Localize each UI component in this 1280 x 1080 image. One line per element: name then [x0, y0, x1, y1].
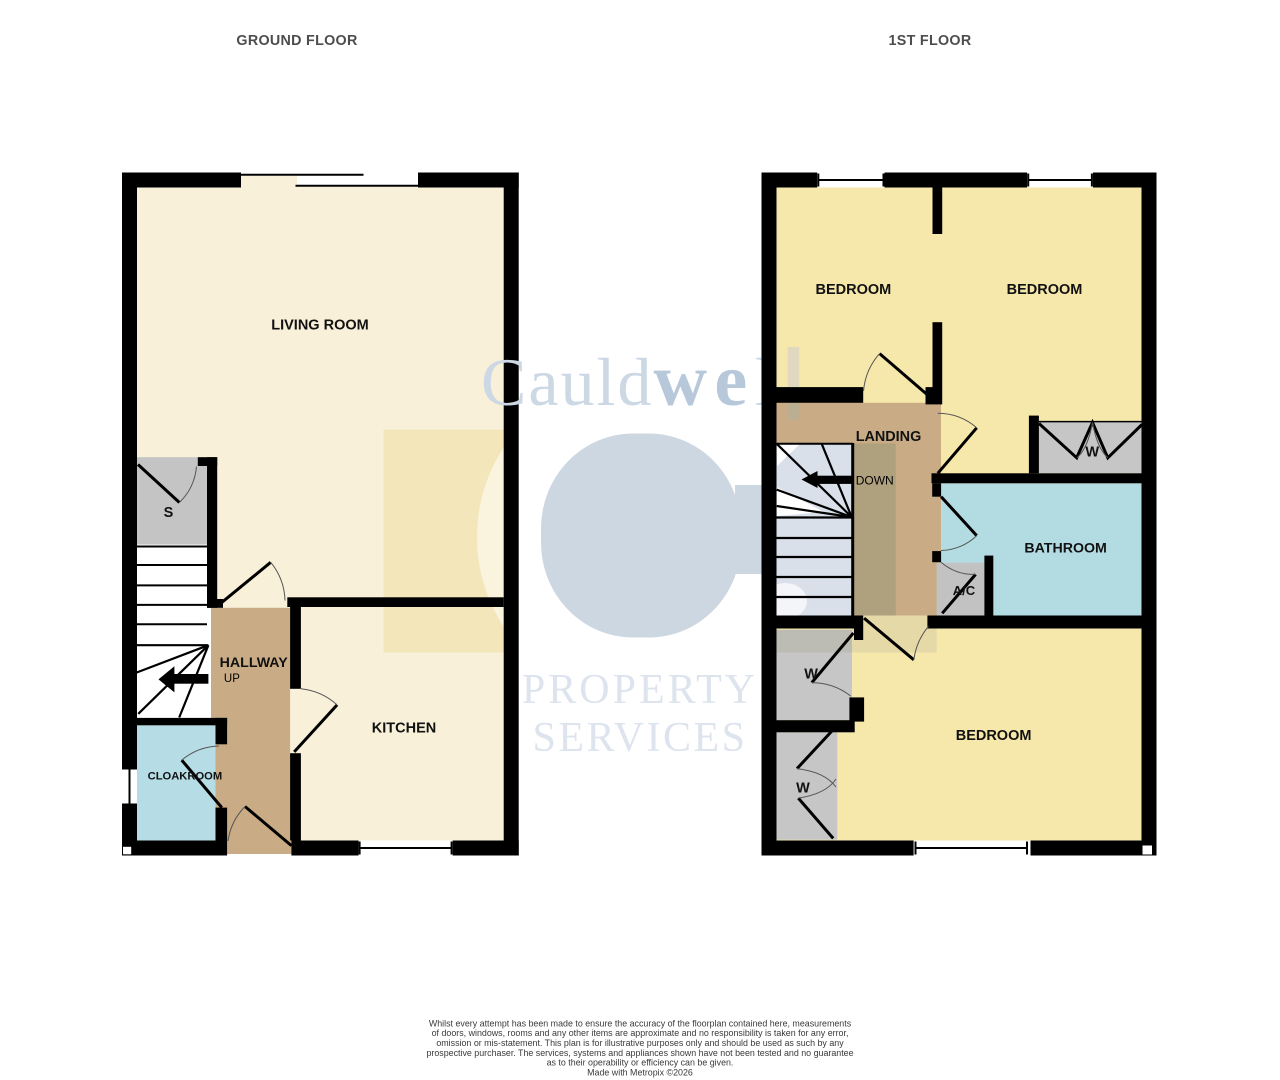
svg-text:DOWN: DOWN	[856, 474, 894, 488]
svg-text:BEDROOM: BEDROOM	[1007, 282, 1083, 298]
svg-text:A/C: A/C	[953, 583, 976, 598]
svg-text:GROUND FLOOR: GROUND FLOOR	[236, 33, 358, 49]
svg-text:UP: UP	[224, 673, 240, 685]
svg-text:prospective purchaser. The ser: prospective purchaser. The services, sys…	[426, 1048, 853, 1058]
svg-text:as to their operability or eff: as to their operability or efficiency ca…	[547, 1058, 734, 1068]
svg-text:LIVING ROOM: LIVING ROOM	[271, 318, 368, 334]
svg-text:Whilst every attempt has been: Whilst every attempt has been made to en…	[429, 1018, 852, 1028]
svg-text:BEDROOM: BEDROOM	[956, 728, 1032, 744]
svg-text:S: S	[164, 505, 174, 521]
svg-text:BATHROOM: BATHROOM	[1024, 541, 1107, 557]
svg-text:PROPERTY: PROPERTY	[522, 667, 758, 713]
svg-text:Cauldwell: Cauldwell	[481, 340, 797, 422]
svg-text:W: W	[804, 666, 818, 682]
svg-text:omission or mis-statement. Thi: omission or mis-statement. This plan is …	[436, 1038, 844, 1048]
svg-text:1ST FLOOR: 1ST FLOOR	[889, 33, 972, 49]
svg-text:HALLWAY: HALLWAY	[220, 655, 289, 671]
svg-text:W: W	[796, 780, 810, 796]
svg-text:of doors, windows, rooms and a: of doors, windows, rooms and any other i…	[432, 1028, 849, 1038]
svg-text:CLOAKROOM: CLOAKROOM	[148, 771, 223, 783]
svg-text:W: W	[1085, 445, 1099, 461]
svg-text:SERVICES: SERVICES	[532, 715, 747, 761]
svg-text:Made with Metropix ©2026: Made with Metropix ©2026	[587, 1068, 693, 1078]
svg-text:LANDING: LANDING	[856, 429, 922, 445]
svg-text:KITCHEN: KITCHEN	[372, 721, 436, 737]
svg-text:BEDROOM: BEDROOM	[816, 282, 892, 298]
